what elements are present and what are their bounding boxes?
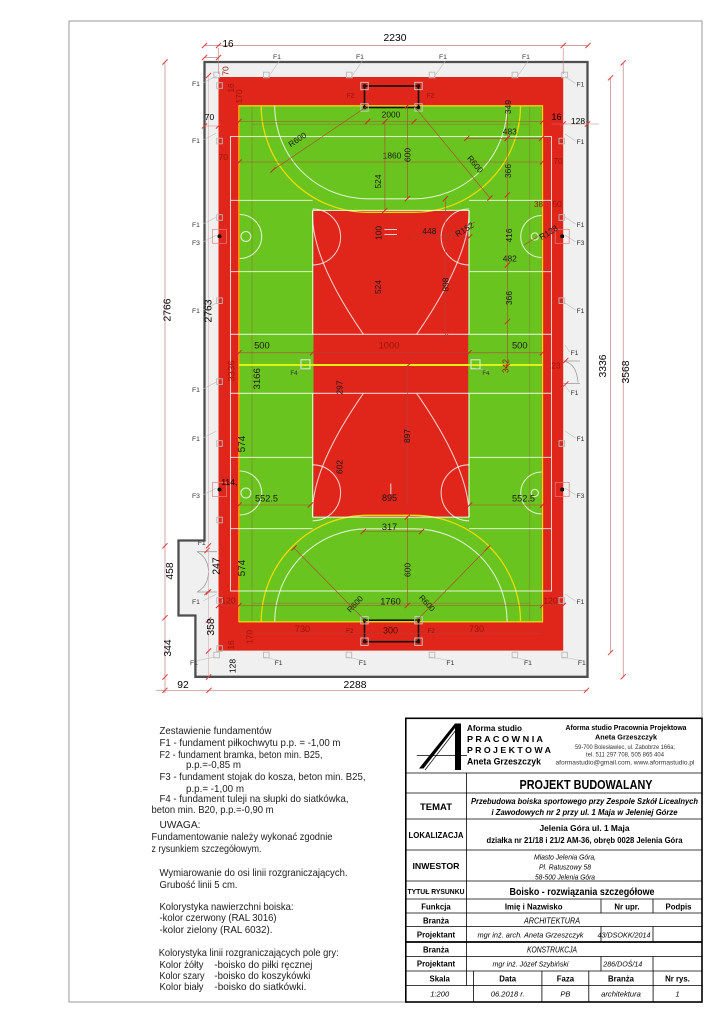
svg-text:architektura: architektura	[601, 990, 641, 999]
svg-text:Kolor szary: Kolor szary	[160, 971, 206, 982]
svg-text:F4: F4	[290, 370, 298, 377]
svg-text:Kolor biały: Kolor biały	[160, 982, 205, 993]
svg-text:F1: F1	[273, 54, 281, 61]
svg-text:F2 - fundament bramka, beton m: F2 - fundament bramka, beton min. B25,	[160, 750, 323, 761]
svg-text:Branża: Branża	[608, 974, 635, 983]
svg-text:1000: 1000	[379, 340, 400, 351]
svg-text:Nr upr.: Nr upr.	[614, 903, 639, 912]
svg-text:Skala: Skala	[430, 974, 451, 983]
svg-text:tel. 511 297 708, 505 865 404: tel. 511 297 708, 505 865 404	[586, 752, 665, 759]
svg-text:Jelenia Góra ul. 1 Maja: Jelenia Góra ul. 1 Maja	[540, 824, 631, 833]
svg-text:730: 730	[469, 624, 484, 634]
svg-text:2766: 2766	[163, 298, 174, 321]
svg-text:F4: F4	[482, 370, 490, 377]
svg-text:1:200: 1:200	[430, 990, 450, 999]
svg-text:120: 120	[221, 596, 236, 606]
svg-text:23: 23	[551, 361, 561, 371]
svg-text:43/DSOKK/2014: 43/DSOKK/2014	[598, 931, 651, 940]
svg-text:1860: 1860	[383, 151, 402, 161]
svg-text:F3: F3	[577, 493, 585, 500]
svg-text:F1: F1	[439, 54, 447, 61]
svg-text:16: 16	[222, 39, 234, 50]
svg-text:128: 128	[228, 659, 238, 673]
svg-text:F1: F1	[577, 436, 585, 443]
svg-text:Projektant: Projektant	[417, 960, 456, 969]
svg-text:F1: F1	[192, 387, 200, 394]
svg-text:100: 100	[374, 226, 384, 240]
svg-text:F1: F1	[192, 599, 200, 606]
svg-text:2288: 2288	[344, 680, 367, 691]
svg-text:16: 16	[551, 112, 561, 122]
svg-text:06.2018 r.: 06.2018 r.	[491, 990, 525, 999]
svg-text:Boisko - rozwiązania szczegóło: Boisko - rozwiązania szczegółowe	[510, 887, 655, 898]
svg-text:482: 482	[503, 254, 517, 264]
svg-text:2763: 2763	[204, 299, 215, 322]
svg-text:UWAGA:: UWAGA:	[160, 820, 201, 831]
svg-text:366: 366	[503, 164, 513, 178]
svg-text:Nr rys.: Nr rys.	[665, 974, 690, 983]
svg-text:70: 70	[205, 112, 215, 122]
svg-text:P R O J E K T O W A: P R O J E K T O W A	[467, 746, 551, 755]
svg-text:F3 - fundament stojak do kosza: F3 - fundament stojak do kosza, beton mi…	[160, 772, 366, 783]
svg-text:działka nr 21/18 i 21/2 AM-36,: działka nr 21/18 i 21/2 AM-36, obręb 002…	[487, 836, 684, 845]
svg-text:KONSTRUKCJA: KONSTRUKCJA	[527, 945, 577, 954]
svg-text:2000: 2000	[382, 110, 401, 120]
svg-text:1760: 1760	[380, 597, 400, 607]
svg-text:170: 170	[234, 89, 244, 103]
svg-text:ARCHITEKTURA: ARCHITEKTURA	[523, 916, 580, 925]
svg-text:128: 128	[571, 116, 585, 126]
svg-text:552.5: 552.5	[512, 494, 535, 504]
svg-text:Aneta Grzeszczyk: Aneta Grzeszczyk	[595, 733, 657, 742]
svg-text:z rysunkiem szczegółowym.: z rysunkiem szczegółowym.	[152, 844, 262, 855]
svg-text:366: 366	[504, 291, 514, 305]
svg-text:INWESTOR: INWESTOR	[413, 861, 460, 871]
svg-text:600: 600	[403, 148, 413, 162]
svg-text:344: 344	[163, 639, 174, 656]
svg-text:448: 448	[422, 226, 436, 236]
svg-text:F1: F1	[359, 660, 367, 667]
svg-text:F1: F1	[522, 54, 530, 61]
svg-text:3336: 3336	[598, 354, 609, 377]
svg-text:349: 349	[503, 100, 513, 114]
svg-text:898: 898	[441, 277, 451, 291]
svg-text:247: 247	[212, 557, 223, 574]
svg-text:F1: F1	[192, 308, 200, 315]
svg-text:beton min. B20, p.p.=-0,90 m: beton min. B20, p.p.=-0,90 m	[152, 805, 274, 816]
svg-text:TEMAT: TEMAT	[420, 802, 452, 813]
svg-text:Aneta Grzeszczyk: Aneta Grzeszczyk	[467, 757, 542, 767]
svg-text:Podpis: Podpis	[666, 903, 693, 912]
svg-text:F1: F1	[192, 81, 200, 88]
svg-text:342: 342	[501, 359, 511, 373]
svg-text:58-500 Jelenia Góra: 58-500 Jelenia Góra	[535, 873, 595, 882]
svg-text:Projektant: Projektant	[417, 931, 456, 940]
svg-text:500: 500	[512, 340, 528, 351]
svg-text:F1: F1	[578, 660, 586, 667]
svg-text:F2: F2	[346, 628, 354, 635]
svg-text:P R A C O W N I A: P R A C O W N I A	[467, 735, 543, 744]
svg-text:317: 317	[382, 522, 397, 532]
svg-text:F1 - fundament piłkochwytu p.p: F1 - fundament piłkochwytu p.p. = -1,00 …	[160, 738, 341, 749]
svg-text:416: 416	[504, 228, 514, 242]
svg-text:Fundamentowanie należy wykonać: Fundamentowanie należy wykonać zgodnie	[152, 832, 333, 843]
svg-text:Faza: Faza	[557, 974, 575, 983]
svg-text:F1: F1	[192, 222, 200, 229]
svg-text:i Zawodowych nr 2 przy ul. 1 M: i Zawodowych nr 2 przy ul. 1 Maja w Jele…	[492, 808, 679, 817]
svg-text:524: 524	[373, 174, 383, 188]
svg-text:PROJEKT BUDOWALANY: PROJEKT BUDOWALANY	[520, 778, 654, 792]
svg-text:Przebudowa boiska sportowego p: Przebudowa boiska sportowego przy Zespol…	[471, 797, 698, 806]
svg-text:524: 524	[373, 280, 383, 294]
svg-text:TYTUŁ RYSUNKU: TYTUŁ RYSUNKU	[408, 887, 465, 896]
svg-text:aformastudio@gmail.com, www.af: aformastudio@gmail.com, www.aformastudio…	[556, 760, 695, 767]
svg-text:895: 895	[382, 493, 397, 503]
svg-text:F3: F3	[577, 240, 585, 247]
svg-text:-boisko do siatkówki.: -boisko do siatkówki.	[214, 982, 306, 993]
svg-text:Miasto Jelenia Góra,: Miasto Jelenia Góra,	[534, 853, 596, 862]
svg-text:Imię i Nazwisko: Imię i Nazwisko	[505, 903, 563, 912]
svg-text:16: 16	[226, 640, 236, 650]
svg-text:38: 38	[534, 199, 544, 209]
svg-text:602: 602	[335, 460, 345, 474]
svg-text:70: 70	[221, 66, 231, 76]
svg-text:3568: 3568	[621, 360, 632, 383]
svg-text:600: 600	[403, 563, 413, 577]
svg-text:730: 730	[295, 624, 310, 634]
svg-text:F1: F1	[577, 82, 585, 89]
svg-text:59-700 Bolesławiec, ul. Zabobr: 59-700 Bolesławiec, ul. Zabobrze 166a;	[575, 744, 675, 751]
svg-text:F1: F1	[275, 660, 283, 667]
svg-text:Data: Data	[499, 974, 517, 983]
svg-text:Branża: Branża	[423, 916, 450, 925]
svg-text:F2: F2	[428, 628, 436, 635]
svg-text:-kolor zielony (RAL 6032).: -kolor zielony (RAL 6032).	[160, 925, 273, 936]
svg-text:F1: F1	[571, 350, 579, 357]
svg-text:p.p.=-0,85 m: p.p.=-0,85 m	[186, 760, 241, 771]
svg-text:-boisko do piłki ręcznej: -boisko do piłki ręcznej	[214, 960, 312, 971]
svg-text:286/DOŚ/14: 286/DOŚ/14	[602, 960, 642, 969]
svg-text:2230: 2230	[384, 33, 407, 44]
svg-text:574: 574	[237, 435, 248, 452]
svg-text:120: 120	[543, 596, 558, 606]
svg-text:358: 358	[206, 618, 217, 635]
svg-text:Kolorystyka nawierzchni boiska: Kolorystyka nawierzchni boiska:	[160, 902, 294, 913]
svg-text:70: 70	[553, 156, 563, 166]
svg-text:Wymiarowanie do osi linii rozg: Wymiarowanie do osi linii rozgraniczając…	[160, 868, 348, 879]
svg-text:F4 - fundament tuleji na słupk: F4 - fundament tuleji na słupki do siatk…	[160, 794, 349, 805]
svg-text:Zestawienie fundamentów: Zestawienie fundamentów	[160, 726, 273, 737]
svg-text:3336: 3336	[227, 360, 238, 381]
svg-text:F2: F2	[427, 93, 435, 100]
svg-text:mgr inż. Józef Szybiński: mgr inż. Józef Szybiński	[493, 960, 569, 969]
svg-text:300: 300	[383, 626, 398, 636]
svg-text:Kolorystyka linii rozgraniczaj: Kolorystyka linii rozgraniczających pole…	[159, 948, 339, 959]
svg-text:70: 70	[219, 152, 229, 162]
svg-text:-boisko do koszykówki: -boisko do koszykówki	[214, 971, 310, 982]
svg-text:458: 458	[165, 562, 176, 579]
svg-text:Branża: Branża	[423, 945, 450, 954]
svg-text:F1: F1	[577, 308, 585, 315]
svg-text:F1: F1	[571, 390, 579, 397]
svg-text:483: 483	[503, 127, 517, 137]
svg-text:Grubość linii 5 cm.: Grubość linii 5 cm.	[160, 880, 238, 891]
svg-text:114,: 114,	[221, 477, 237, 487]
svg-text:F1: F1	[524, 660, 532, 667]
svg-text:F1: F1	[446, 660, 454, 667]
svg-text:LOKALIZACJA: LOKALIZACJA	[409, 831, 464, 840]
svg-text:92: 92	[177, 680, 189, 691]
svg-text:F2: F2	[347, 93, 355, 100]
svg-text:897: 897	[402, 429, 412, 443]
svg-text:F1: F1	[577, 222, 585, 229]
svg-text:552.5: 552.5	[255, 494, 278, 504]
svg-text:1: 1	[675, 990, 679, 999]
svg-text:F1: F1	[190, 660, 198, 667]
svg-text:F1: F1	[577, 139, 585, 146]
svg-text:3166: 3166	[252, 368, 263, 389]
svg-text:574: 574	[237, 559, 248, 576]
svg-text:F1: F1	[356, 54, 364, 61]
svg-text:Aforma studio: Aforma studio	[467, 723, 522, 733]
svg-text:Aforma studio Pracownia Projek: Aforma studio Pracownia Projektowa	[566, 723, 688, 732]
svg-text:F3: F3	[192, 493, 200, 500]
svg-text:Funkcja: Funkcja	[421, 903, 451, 912]
svg-text:170: 170	[245, 630, 255, 644]
svg-text:F1: F1	[198, 540, 206, 547]
svg-text:F1: F1	[577, 599, 585, 606]
svg-text:297: 297	[335, 380, 345, 394]
svg-text:Pl. Ratuszowy 58: Pl. Ratuszowy 58	[539, 863, 592, 872]
svg-text:mgr inż. arch. Aneta Grzeszczy: mgr inż. arch. Aneta Grzeszczyk	[478, 931, 585, 940]
svg-text:PB: PB	[560, 990, 570, 999]
svg-text:-kolor czerwony (RAL 3016): -kolor czerwony (RAL 3016)	[160, 913, 277, 924]
svg-text:50: 50	[552, 199, 562, 209]
svg-text:500: 500	[254, 340, 270, 351]
svg-text:F3: F3	[192, 240, 200, 247]
svg-text:F1: F1	[192, 138, 200, 145]
svg-text:F1: F1	[192, 436, 200, 443]
svg-text:Kolor żółty: Kolor żółty	[160, 960, 205, 971]
